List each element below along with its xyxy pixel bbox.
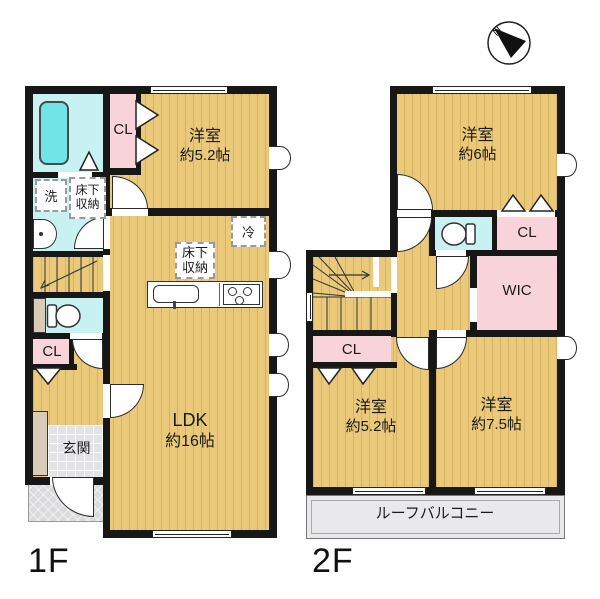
door-opening bbox=[470, 288, 477, 322]
toilet-icon bbox=[46, 300, 82, 332]
room-name: 洋室 bbox=[150, 127, 260, 147]
genkan-label: 玄関 bbox=[48, 440, 105, 457]
room-name: 洋室 bbox=[420, 126, 535, 146]
door-opening bbox=[437, 330, 466, 337]
bathtub bbox=[39, 101, 69, 165]
wall bbox=[557, 86, 565, 495]
casement-window bbox=[269, 146, 291, 170]
closet-label: CL bbox=[342, 341, 361, 358]
compass-icon: N bbox=[484, 18, 534, 68]
wall bbox=[306, 330, 397, 336]
kitchen-faucet bbox=[173, 301, 176, 309]
floor-text: 2F bbox=[312, 542, 354, 580]
closet-label: CL bbox=[113, 121, 132, 138]
casement-window bbox=[557, 153, 577, 177]
room-size: 約7.5帖 bbox=[439, 416, 554, 434]
closet-label-left-2f: CL bbox=[312, 341, 391, 359]
closet-label-right-2f: CL bbox=[497, 224, 557, 242]
stove-burner bbox=[228, 287, 237, 296]
casement-door bbox=[269, 251, 291, 279]
laundry-space: 洗 bbox=[35, 179, 67, 212]
casement-window bbox=[269, 333, 289, 357]
underfloor-line1: 床下 bbox=[182, 246, 208, 261]
room-label-ldk: LDK 約16帖 bbox=[135, 410, 245, 451]
folding-door-icon bbox=[316, 366, 343, 386]
closet-label-top-1f: CL bbox=[106, 121, 140, 139]
wic-text: WIC bbox=[502, 282, 531, 299]
underfloor-line1: 床下 bbox=[75, 184, 99, 198]
counter-divider bbox=[219, 283, 220, 306]
door-opening bbox=[103, 255, 110, 291]
floor-label-1f: 1F bbox=[28, 541, 98, 582]
room-label-yoshitsu6: 洋室 約6帖 bbox=[420, 126, 535, 164]
room-name: 洋室 bbox=[315, 398, 427, 418]
room-label-yoshitsu52-1f: 洋室 約5.2帖 bbox=[150, 127, 260, 165]
underfloor-line2: 収納 bbox=[75, 198, 99, 212]
underfloor-line2: 収納 bbox=[182, 261, 208, 276]
window bbox=[306, 292, 313, 322]
toilet-icon bbox=[438, 220, 478, 248]
underfloor-storage-washroom: 床下 収納 bbox=[69, 177, 106, 219]
kitchen-sink bbox=[153, 285, 199, 303]
wall bbox=[429, 330, 436, 495]
casement-window bbox=[269, 373, 289, 397]
window bbox=[152, 530, 232, 538]
folding-door-icon bbox=[350, 366, 377, 386]
room-size: 約6帖 bbox=[420, 146, 535, 164]
closet-label: CL bbox=[42, 343, 61, 360]
door-opening bbox=[397, 210, 431, 217]
window bbox=[432, 86, 532, 94]
balcony-label: ルーフバルコニー bbox=[335, 505, 535, 523]
floor-label-2f: 2F bbox=[312, 541, 382, 582]
laundry-label: 洗 bbox=[44, 186, 57, 205]
wic-label: WIC bbox=[477, 282, 557, 300]
closet-label: CL bbox=[517, 224, 536, 241]
wall bbox=[306, 250, 397, 257]
stairs-1f bbox=[33, 257, 103, 292]
wall bbox=[25, 86, 33, 484]
wall bbox=[390, 86, 397, 257]
wall bbox=[306, 250, 313, 495]
room-size: 約16帖 bbox=[135, 432, 245, 452]
room-label-yoshitsu75: 洋室 約7.5帖 bbox=[439, 396, 554, 434]
genkan-text: 玄関 bbox=[63, 440, 91, 456]
shoe-cabinet bbox=[31, 411, 48, 476]
closet-label-hall-1f: CL bbox=[33, 343, 71, 361]
room-size: 約5.2帖 bbox=[150, 147, 260, 165]
floor-plan: 洗 床下 収納 冷 床下 収納 洋室 約5.2帖 LDK 約16帖 CL CL … bbox=[0, 0, 600, 599]
door-opening bbox=[112, 208, 148, 216]
stove-burner bbox=[235, 296, 244, 305]
room-size: 約5.2帖 bbox=[315, 418, 427, 436]
door-opening bbox=[103, 384, 110, 418]
window bbox=[150, 86, 228, 94]
toilet-cabinet-1f bbox=[33, 298, 46, 333]
washbasin-faucet-dot bbox=[39, 232, 43, 236]
fridge-label: 冷 bbox=[242, 222, 255, 241]
underfloor-storage-kitchen: 床下 収納 bbox=[175, 242, 215, 279]
door-opening bbox=[103, 216, 110, 249]
casement-window bbox=[557, 336, 577, 360]
folding-door-icon bbox=[500, 193, 527, 213]
room-name: LDK bbox=[135, 410, 245, 432]
wall bbox=[103, 86, 110, 538]
room-name: 洋室 bbox=[439, 396, 554, 416]
stove-burner bbox=[243, 287, 252, 296]
folding-door-icon bbox=[78, 150, 100, 172]
floor-text: 1F bbox=[28, 542, 70, 580]
fridge-space: 冷 bbox=[231, 216, 266, 247]
stairs-2f bbox=[313, 257, 391, 330]
wall bbox=[25, 292, 110, 298]
folding-door-icon bbox=[528, 193, 555, 213]
room-label-yoshitsu52-2f: 洋室 約5.2帖 bbox=[315, 398, 427, 436]
balcony-text: ルーフバルコニー bbox=[376, 505, 495, 522]
window bbox=[352, 487, 426, 495]
window bbox=[474, 487, 546, 495]
door-opening bbox=[391, 257, 397, 293]
folding-door-icon bbox=[33, 366, 63, 386]
